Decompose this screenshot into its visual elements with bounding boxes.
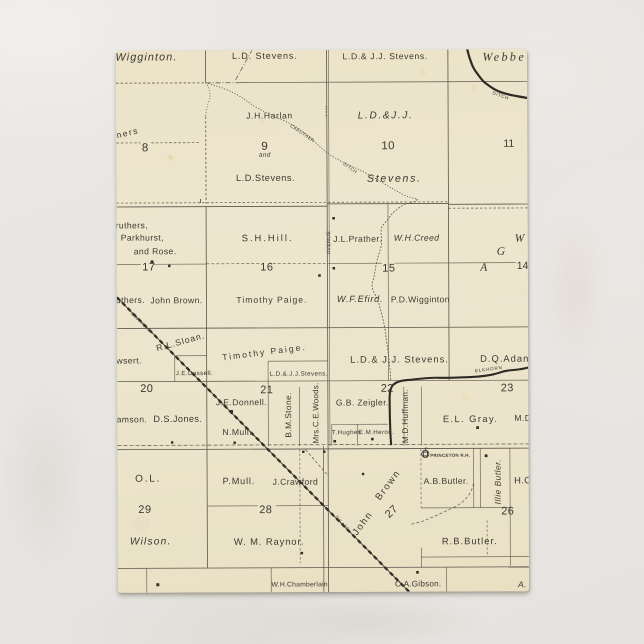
- svg-text:A.B.Butler.: A.B.Butler.: [424, 476, 469, 486]
- svg-text:E.L. Gray.: E.L. Gray.: [443, 413, 499, 424]
- svg-text:J.Crawford: J.Crawford: [273, 477, 319, 487]
- svg-text:and: and: [259, 152, 271, 159]
- svg-text:16: 16: [260, 261, 273, 273]
- svg-text:PRINCETON R.H.: PRINCETON R.H.: [430, 453, 470, 458]
- svg-text:G: G: [497, 246, 506, 258]
- svg-text:L.D. Stevens.: L.D. Stevens.: [232, 51, 298, 61]
- svg-text:Stevens.: Stevens.: [367, 173, 422, 185]
- svg-text:amson.: amson.: [117, 414, 148, 424]
- svg-text:A: A: [479, 262, 488, 274]
- svg-text:L.D.Stevens.: L.D.Stevens.: [236, 173, 295, 183]
- svg-text:Wilson.: Wilson.: [130, 536, 172, 547]
- svg-text:ruthers,: ruthers,: [116, 220, 148, 230]
- svg-text:29: 29: [138, 504, 151, 516]
- svg-text:R.B.Butler.: R.B.Butler.: [442, 535, 498, 546]
- svg-text:and Rose.: and Rose.: [134, 246, 177, 256]
- svg-text:P.D.Wigginton: P.D.Wigginton: [391, 294, 450, 304]
- svg-text:14: 14: [517, 260, 529, 272]
- svg-text:SAN PABLO: SAN PABLO: [129, 311, 152, 334]
- svg-text:John: John: [350, 509, 375, 537]
- svg-text:John Brown.: John Brown.: [150, 295, 202, 305]
- svg-text:J.L.Prather.: J.L.Prather.: [333, 234, 382, 244]
- svg-text:TULARE: TULARE: [334, 514, 350, 531]
- svg-text:A.: A.: [517, 579, 527, 589]
- svg-text:Brown: Brown: [373, 468, 403, 503]
- svg-text:M.D: M.D: [514, 413, 529, 423]
- svg-text:O.L.: O.L.: [135, 474, 161, 485]
- svg-text:N.Mull.: N.Mull.: [222, 427, 252, 437]
- svg-text:L.D.& J.J. Stevens.: L.D.& J.J. Stevens.: [350, 353, 449, 364]
- svg-text:W.F.Efird.: W.F.Efird.: [337, 294, 383, 304]
- svg-text:L.D.&J.J.: L.D.&J.J.: [358, 110, 414, 121]
- svg-text:B.M.Stone.: B.M.Stone.: [283, 392, 293, 437]
- svg-text:AVENUE: AVENUE: [326, 231, 332, 254]
- svg-text:DITCH: DITCH: [342, 161, 358, 174]
- svg-text:15: 15: [382, 263, 395, 275]
- svg-text:26: 26: [501, 505, 514, 517]
- svg-text:21: 21: [260, 384, 273, 396]
- svg-text:11: 11: [503, 138, 514, 150]
- svg-text:P.Mull.: P.Mull.: [223, 476, 256, 486]
- svg-text:ners: ners: [116, 125, 140, 140]
- svg-text:W.H.Creed: W.H.Creed: [394, 233, 440, 243]
- svg-text:Parkhurst,: Parkhurst,: [121, 233, 164, 243]
- svg-text:20: 20: [140, 383, 153, 395]
- svg-text:Mrs.C.E.Woods.: Mrs.C.E.Woods.: [311, 383, 320, 444]
- svg-text:W.H.Chamberlain.: W.H.Chamberlain.: [272, 581, 330, 588]
- svg-text:CARUTHER: CARUTHER: [289, 123, 315, 143]
- svg-text:J.H.Harlan: J.H.Harlan: [246, 110, 293, 120]
- svg-text:DITCH: DITCH: [492, 90, 510, 100]
- svg-text:M.D.Huffman.: M.D.Huffman.: [401, 389, 410, 443]
- svg-text:28: 28: [259, 504, 272, 516]
- svg-text:T.Hughes: T.Hughes: [332, 429, 361, 436]
- svg-text:D.S.Jones.: D.S.Jones.: [153, 414, 202, 424]
- svg-text:C.A.Gibson.: C.A.Gibson.: [395, 579, 441, 588]
- svg-text:27: 27: [383, 503, 401, 521]
- svg-text:Wigginton.: Wigginton.: [116, 51, 177, 63]
- svg-text:L.D.& J.J. Stevens.: L.D.& J.J. Stevens.: [342, 51, 427, 61]
- svg-text:Webbe: Webbe: [482, 50, 526, 64]
- svg-text:S.H.Hill.: S.H.Hill.: [242, 232, 294, 243]
- svg-text:22: 22: [381, 383, 394, 395]
- svg-text:uthers.: uthers.: [116, 295, 145, 305]
- svg-text:J.E.Donnell.: J.E.Donnell.: [216, 397, 267, 407]
- svg-text:10: 10: [381, 140, 395, 152]
- svg-text:L.D.&.J.J.Stevens.: L.D.&.J.J.Stevens.: [270, 371, 328, 378]
- svg-text:R.L.Sloan.: R.L.Sloan.: [155, 330, 206, 353]
- svg-text:Timothy Paige.: Timothy Paige.: [236, 295, 307, 305]
- svg-text:Timothy Paige.: Timothy Paige.: [222, 342, 308, 363]
- svg-text:Illie Butler.: Illie Butler.: [493, 459, 503, 504]
- svg-text:J.E.Dassell.: J.E.Dassell.: [176, 370, 213, 377]
- svg-text:G.B. Zeigler.: G.B. Zeigler.: [336, 397, 389, 407]
- svg-text:W. M. Raynor.: W. M. Raynor.: [234, 536, 305, 547]
- svg-text:23: 23: [501, 382, 514, 394]
- svg-text:W: W: [515, 233, 526, 245]
- svg-text:wsert.: wsert.: [116, 355, 142, 365]
- svg-text:8: 8: [142, 142, 148, 154]
- svg-text:H.O.: H.O.: [514, 474, 529, 485]
- svg-text:D.Q.Adan: D.Q.Adan: [480, 353, 529, 364]
- svg-text:E.M.Heron.: E.M.Heron.: [359, 429, 394, 436]
